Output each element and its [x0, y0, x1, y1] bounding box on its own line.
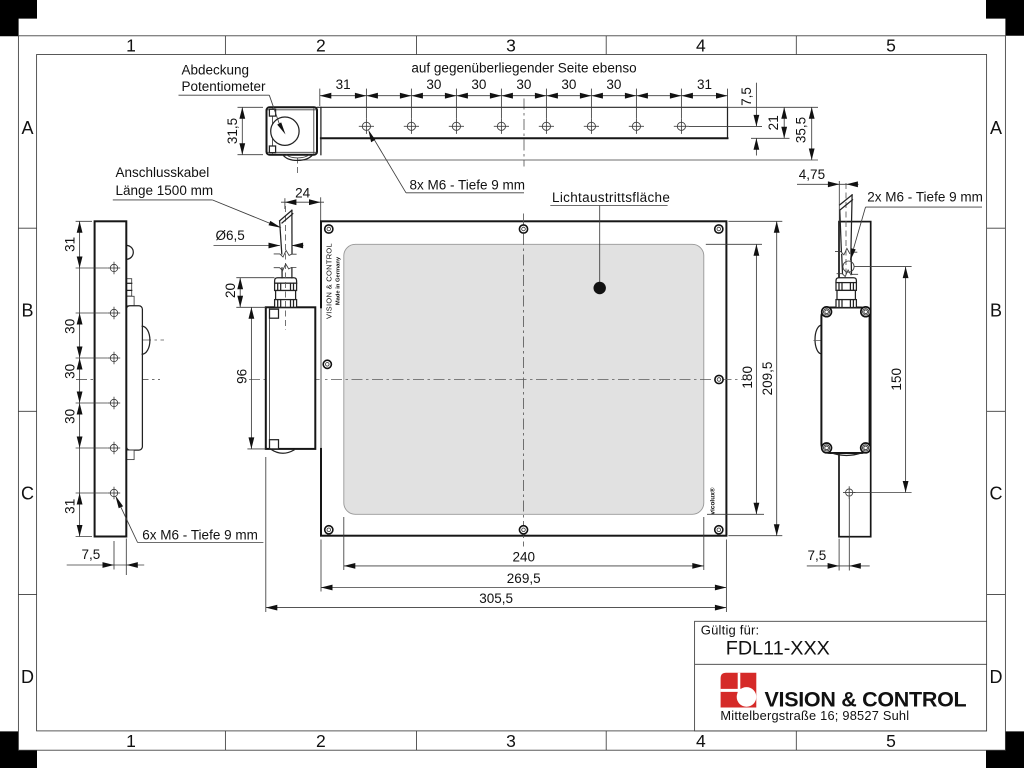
svg-text:Gültig für:: Gültig für: [701, 623, 760, 638]
svg-text:4: 4 [696, 731, 706, 751]
svg-text:7,5: 7,5 [808, 548, 827, 563]
svg-text:C: C [990, 483, 1003, 503]
svg-text:2: 2 [316, 731, 326, 751]
svg-text:D: D [21, 667, 34, 687]
svg-text:180: 180 [740, 366, 755, 389]
svg-text:1: 1 [126, 731, 136, 751]
svg-text:4,75: 4,75 [799, 167, 825, 182]
svg-text:Anschlusskabel: Anschlusskabel [116, 165, 210, 180]
svg-text:4: 4 [696, 36, 706, 56]
svg-text:269,5: 269,5 [507, 571, 541, 586]
svg-text:31: 31 [336, 77, 351, 92]
svg-text:A: A [990, 118, 1002, 138]
svg-text:30: 30 [63, 409, 78, 424]
svg-text:209,5: 209,5 [760, 362, 775, 396]
svg-text:7,5: 7,5 [82, 547, 101, 562]
svg-text:2: 2 [316, 36, 326, 56]
svg-text:Länge 1500 mm: Länge 1500 mm [116, 183, 214, 198]
svg-text:30: 30 [63, 319, 78, 334]
svg-text:30: 30 [561, 77, 576, 92]
svg-text:31,5: 31,5 [225, 118, 240, 144]
svg-text:30: 30 [471, 77, 486, 92]
svg-text:vicolux®: vicolux® [709, 487, 717, 514]
svg-text:30: 30 [63, 364, 78, 379]
svg-text:Ø6,5: Ø6,5 [216, 228, 245, 243]
svg-text:Made in Germany: Made in Germany [336, 256, 342, 305]
svg-text:2x M6 - Tiefe 9 mm: 2x M6 - Tiefe 9 mm [867, 189, 983, 204]
svg-text:96: 96 [235, 369, 250, 384]
svg-text:3: 3 [506, 731, 516, 751]
svg-text:Mittelbergstraße 16; 98527 Suh: Mittelbergstraße 16; 98527 Suhl [720, 708, 909, 723]
svg-text:C: C [21, 483, 34, 503]
svg-text:1: 1 [126, 36, 136, 56]
svg-text:Lichtaustrittsfläche: Lichtaustrittsfläche [552, 190, 670, 205]
svg-text:31: 31 [697, 77, 712, 92]
svg-text:24: 24 [295, 186, 311, 201]
svg-text:30: 30 [516, 77, 531, 92]
svg-text:31: 31 [63, 237, 78, 252]
svg-text:3: 3 [506, 36, 516, 56]
svg-text:35,5: 35,5 [793, 117, 808, 143]
svg-text:150: 150 [889, 368, 904, 391]
svg-text:B: B [21, 300, 33, 320]
svg-text:Potentiometer: Potentiometer [182, 79, 267, 94]
svg-text:FDL11-XXX: FDL11-XXX [726, 638, 830, 660]
svg-text:6x M6 - Tiefe 9 mm: 6x M6 - Tiefe 9 mm [142, 527, 258, 542]
svg-text:240: 240 [513, 549, 536, 564]
svg-text:auf gegenüberliegender Seite e: auf gegenüberliegender Seite ebenso [411, 61, 636, 76]
svg-text:5: 5 [886, 36, 896, 56]
svg-text:Abdeckung: Abdeckung [182, 62, 250, 77]
svg-text:31: 31 [63, 499, 78, 514]
svg-text:A: A [21, 118, 33, 138]
svg-text:20: 20 [223, 283, 238, 298]
svg-text:30: 30 [426, 77, 441, 92]
svg-text:B: B [990, 300, 1002, 320]
svg-text:21: 21 [766, 115, 781, 130]
svg-text:VISION & CONTROL: VISION & CONTROL [325, 243, 334, 319]
svg-text:7,5: 7,5 [739, 87, 754, 106]
svg-text:305,5: 305,5 [479, 591, 513, 606]
svg-text:D: D [990, 667, 1003, 687]
svg-text:30: 30 [606, 77, 621, 92]
svg-text:5: 5 [886, 731, 896, 751]
svg-text:8x M6 - Tiefe 9 mm: 8x M6 - Tiefe 9 mm [410, 178, 526, 193]
